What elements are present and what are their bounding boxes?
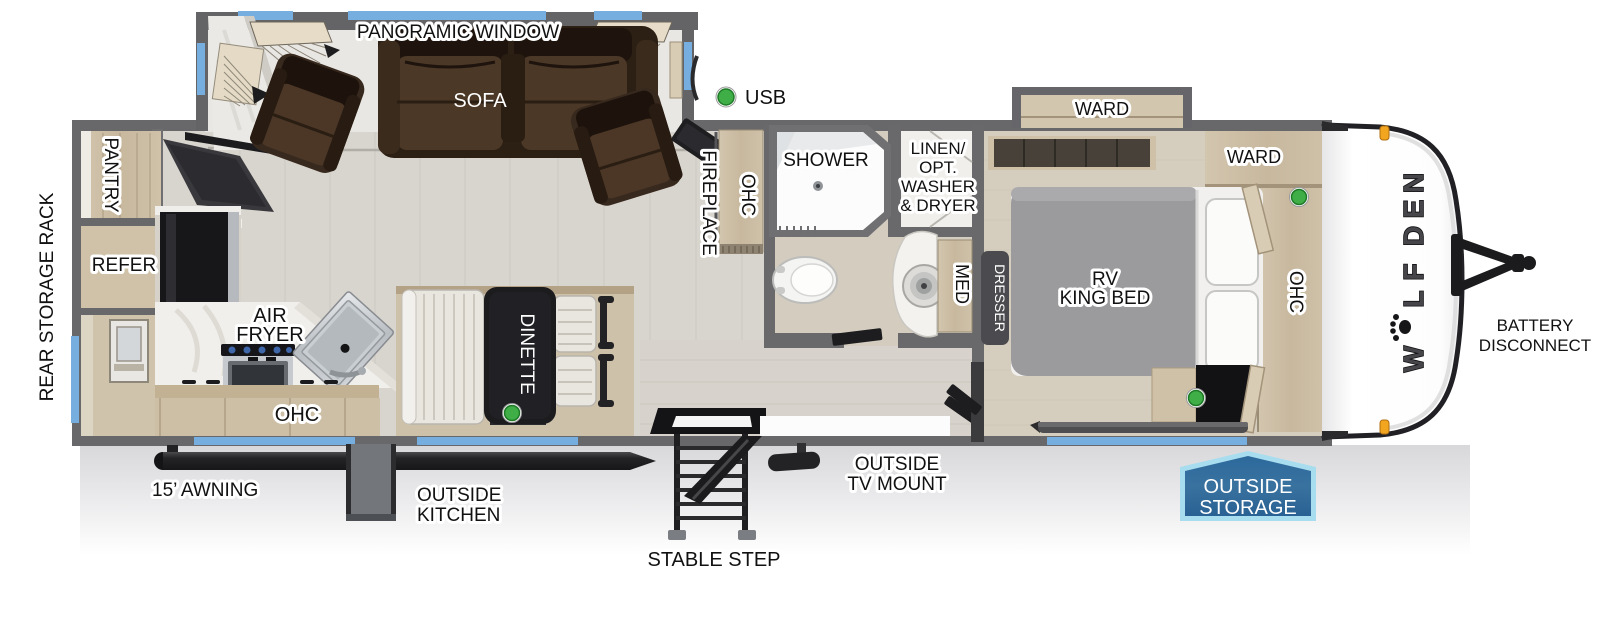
svg-text:DINETTE: DINETTE [516,313,537,394]
svg-text:OUTSIDE: OUTSIDE [1204,476,1293,498]
svg-text:N: N [1398,173,1429,193]
svg-text:PANTRY: PANTRY [100,137,121,213]
svg-text:OHC: OHC [737,174,758,216]
svg-text:OHC: OHC [1285,271,1306,313]
svg-text:LINEN/: LINEN/ [911,139,966,158]
svg-text:WASHER: WASHER [901,177,975,196]
svg-text:L: L [1398,290,1429,307]
svg-text:PANORAMIC WINDOW: PANORAMIC WINDOW [357,22,559,43]
svg-text:BATTERY: BATTERY [1497,316,1574,335]
svg-text:15’ AWNING: 15’ AWNING [152,480,258,501]
svg-text:SOFA: SOFA [453,90,507,112]
svg-text:REAR STORAGE RACK: REAR STORAGE RACK [37,192,58,401]
svg-text:DISCONNECT: DISCONNECT [1479,336,1591,355]
svg-text:E: E [1398,200,1429,219]
svg-text:OUTSIDE: OUTSIDE [855,454,939,475]
svg-text:KITCHEN: KITCHEN [417,505,500,526]
svg-text:FIREPLACE: FIREPLACE [698,150,719,256]
svg-text:W: W [1398,345,1429,372]
svg-text:WARD: WARD [1227,147,1281,167]
svg-text:STORAGE: STORAGE [1199,497,1296,519]
svg-text:D: D [1398,226,1429,246]
svg-text:SHOWER: SHOWER [783,150,869,171]
svg-text:OUTSIDE: OUTSIDE [417,485,501,506]
svg-text:TV MOUNT: TV MOUNT [847,474,947,495]
svg-text:STABLE STEP: STABLE STEP [647,549,780,571]
svg-text:MED: MED [952,264,972,304]
svg-text:KING BED: KING BED [1060,288,1151,309]
svg-text:FRYER: FRYER [236,324,303,346]
svg-text:OHC: OHC [275,404,319,426]
svg-text:USB: USB [745,87,786,109]
svg-text:REFER: REFER [92,255,156,276]
svg-text:WARD: WARD [1075,99,1129,119]
svg-text:OPT.: OPT. [919,158,957,177]
svg-text:F: F [1398,263,1429,280]
svg-text:RV: RV [1092,269,1118,290]
svg-text:DRESSER: DRESSER [992,264,1008,332]
svg-text:& DRYER: & DRYER [900,196,975,215]
